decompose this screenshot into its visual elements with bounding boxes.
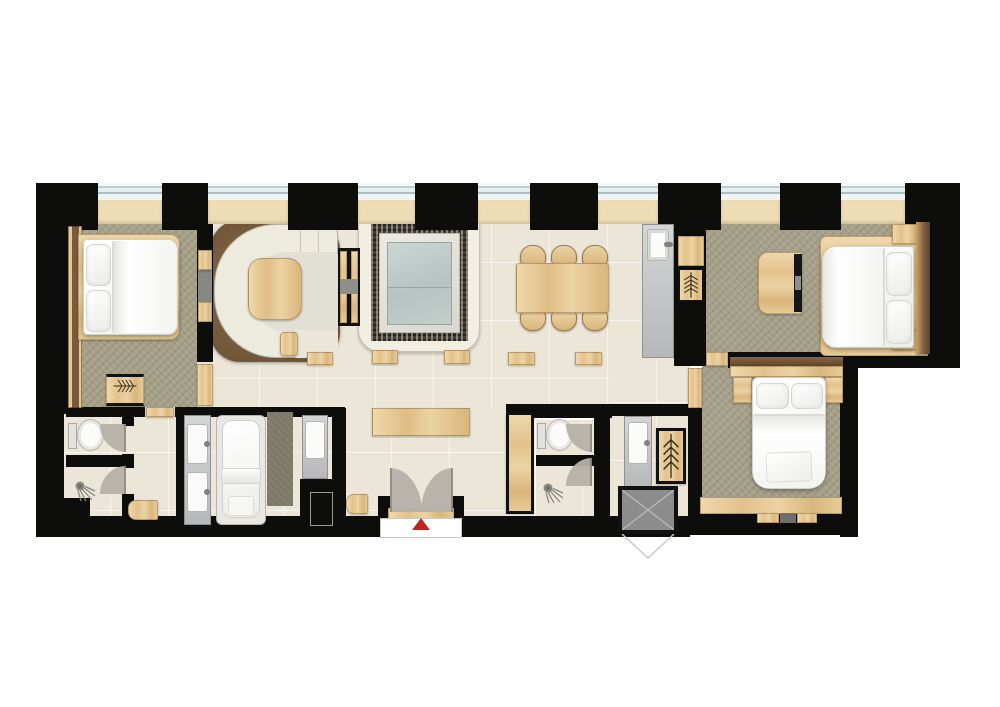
window <box>598 183 658 224</box>
bed-headboard <box>916 222 930 354</box>
footstool <box>780 513 796 523</box>
dining-chair <box>520 245 546 265</box>
floor-mat <box>267 412 293 506</box>
spa-pool-water <box>387 242 452 325</box>
wall-pier <box>162 183 208 230</box>
toilet-tank <box>537 423 546 449</box>
sofa-end-table <box>280 332 298 356</box>
window <box>478 183 530 224</box>
window-sill <box>478 200 530 224</box>
bed-pillow <box>756 383 789 409</box>
bedroom-east-door-threshold <box>706 352 728 366</box>
bath-mat <box>228 496 254 516</box>
hall-bench <box>508 352 535 365</box>
wall-pier <box>530 183 598 230</box>
window <box>208 183 288 224</box>
bed-side-panel <box>825 377 843 403</box>
builtin-niche-shelf <box>198 302 212 322</box>
wall-pier <box>780 183 841 230</box>
media-divider <box>338 248 360 326</box>
wall-pier <box>36 183 98 230</box>
dining-table <box>516 263 609 313</box>
media-divider-screen <box>340 279 358 294</box>
dining-chair <box>582 245 608 265</box>
faucet-icon <box>204 441 210 447</box>
window-glazing <box>478 183 530 200</box>
north-facade <box>36 183 958 230</box>
entry-marker-icon <box>412 518 430 530</box>
bedroom-south-door-threshold <box>688 368 702 408</box>
coffee-table <box>248 258 302 320</box>
bath-bench <box>128 500 158 520</box>
window-sill <box>721 200 780 224</box>
dining-chair <box>551 245 577 265</box>
window-sill <box>358 200 415 224</box>
footstool <box>797 513 817 523</box>
window-glazing <box>598 183 658 200</box>
bench <box>678 236 704 266</box>
hall-bench <box>575 352 602 365</box>
service-shaft <box>618 486 678 534</box>
spa-step <box>372 350 398 364</box>
shaft-x-icon <box>622 490 674 530</box>
wall-pier <box>658 183 721 230</box>
wall-niche-north <box>612 404 690 416</box>
bedroom-west-door-threshold <box>197 364 213 406</box>
spa-step <box>444 350 470 364</box>
window-sill <box>98 200 162 224</box>
shower-icon <box>72 478 96 504</box>
spa-pool-seam <box>388 287 451 288</box>
bed-side-panel <box>733 377 752 403</box>
hall-side-bench <box>346 494 368 514</box>
hall-bench <box>307 352 333 365</box>
window-sill <box>598 200 658 224</box>
bench <box>700 497 842 514</box>
hangers-icon <box>112 368 138 404</box>
wall-west <box>36 224 70 414</box>
wall-vanity-back <box>176 412 184 524</box>
bed-duvet <box>112 241 176 333</box>
bed-headboard <box>730 357 843 366</box>
window-glazing <box>358 183 415 200</box>
bed-pillow <box>86 290 111 332</box>
hangers-icon <box>680 270 702 300</box>
hanger-rack <box>678 268 704 302</box>
wall-pier <box>905 183 958 230</box>
window-glazing <box>98 183 162 200</box>
window <box>841 183 905 224</box>
floor-plan-canvas <box>0 0 1000 707</box>
hanger-rack <box>656 428 686 484</box>
hanger-rack <box>106 374 144 406</box>
tall-cabinet <box>506 412 534 514</box>
wall-bath-rooms-divider <box>66 455 122 467</box>
window-glazing <box>841 183 905 200</box>
shower-icon <box>540 480 564 506</box>
bed-duvet <box>823 248 885 346</box>
dresser-screen <box>795 276 801 290</box>
window <box>98 183 162 224</box>
wall-pier <box>415 183 478 230</box>
faucet-icon <box>204 489 210 495</box>
bed-runner-towel <box>765 451 812 483</box>
shaft-extent-lines <box>620 534 676 560</box>
bed-headboard-shelf <box>730 366 843 377</box>
window-glazing <box>208 183 288 200</box>
wall-wc-east <box>594 406 610 516</box>
toilet-tank <box>68 423 77 449</box>
bed-pillow <box>791 383 823 409</box>
window <box>358 183 415 224</box>
bedroom-west-bath-threshold <box>146 407 174 417</box>
window-sill <box>841 200 905 224</box>
hangers-icon <box>659 431 683 481</box>
vanity-sink <box>305 421 325 459</box>
footstool <box>757 513 779 523</box>
window-sill <box>208 200 288 224</box>
builtin-niche-shelf <box>198 250 212 270</box>
bed-pillow <box>86 244 111 286</box>
bed-pillow <box>886 300 912 344</box>
faucet-icon <box>644 440 650 446</box>
wall-hall-west <box>332 408 346 516</box>
bathtub-towel <box>221 468 261 484</box>
wall-pier <box>288 183 358 230</box>
bed-pillow <box>886 252 912 296</box>
kitchen-faucet-icon <box>664 242 673 247</box>
console-table <box>372 408 470 436</box>
window <box>721 183 780 224</box>
window-glazing <box>721 183 780 200</box>
cabinet-outline <box>310 492 333 526</box>
